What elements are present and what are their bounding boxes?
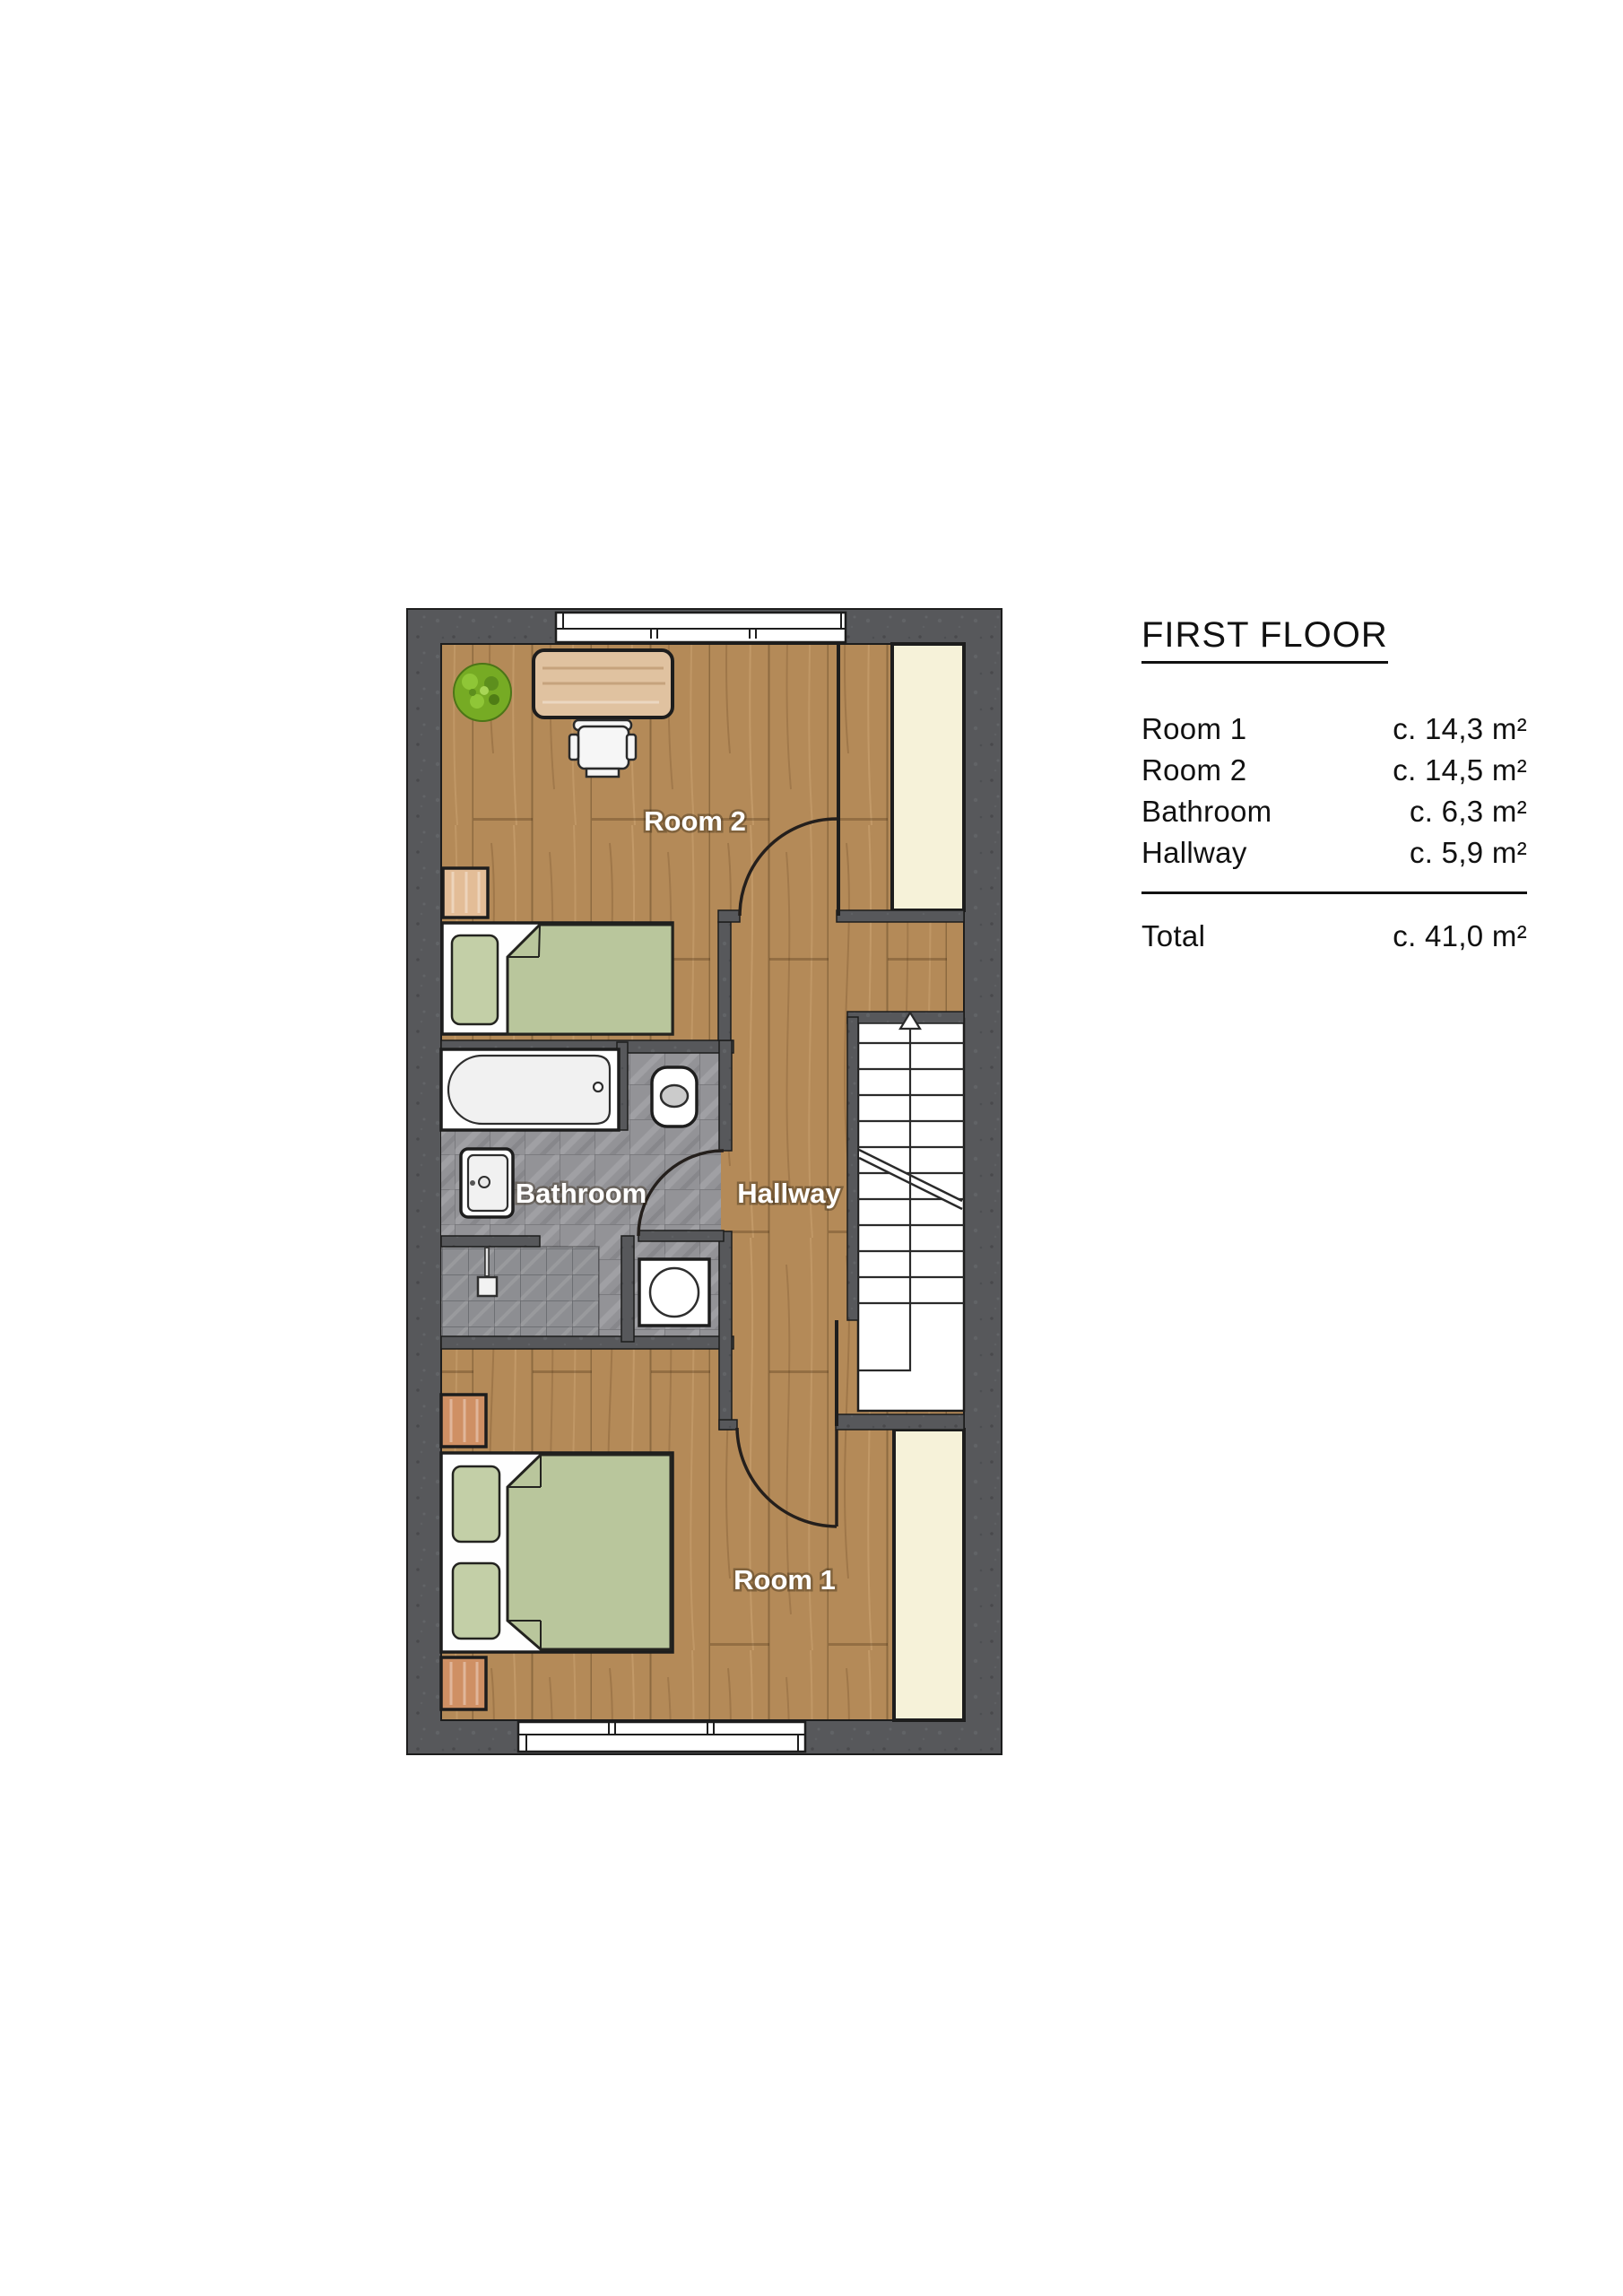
legend-rows: Room 1 c. 14,3 m² Room 2 c. 14,5 m² Bath… [1141, 709, 1527, 874]
legend-value: c. 14,5 m² [1393, 750, 1527, 791]
legend-separator [1141, 891, 1527, 894]
legend-label: Bathroom [1141, 791, 1271, 832]
legend-value: c. 41,0 m² [1393, 916, 1527, 957]
sink [461, 1149, 513, 1217]
legend-row-hallway: Hallway c. 5,9 m² [1141, 832, 1527, 874]
closet-room2 [892, 644, 964, 910]
legend-value: c. 14,3 m² [1393, 709, 1527, 750]
legend-label: Room 2 [1141, 750, 1246, 791]
legend-label: Hallway [1141, 832, 1247, 874]
window-bottom [518, 1722, 805, 1752]
tub-tap-icon [594, 1083, 603, 1091]
legend: FIRST FLOOR Room 1 c. 14,3 m² Room 2 c. … [1141, 615, 1527, 957]
legend-label: Room 1 [1141, 709, 1246, 750]
desk [534, 650, 673, 717]
page-title: FIRST FLOOR [1141, 615, 1388, 664]
shower-head-icon [478, 1277, 497, 1296]
bathroom-label: Bathroom [516, 1178, 647, 1209]
bathtub [441, 1049, 619, 1130]
nightstand-room1-top [441, 1395, 486, 1447]
legend-value: c. 6,3 m² [1410, 791, 1527, 832]
nightstand-room1-bottom [441, 1657, 486, 1709]
washer-drum-icon [650, 1268, 699, 1317]
floor-plan-page: Room 2 Bathroom Hallway Room 1 FIRST FLO… [0, 0, 1623, 2296]
room1-label: Room 1 [733, 1564, 836, 1596]
closet-room1 [894, 1430, 964, 1720]
hallway-label: Hallway [737, 1178, 841, 1209]
room2-label: Room 2 [644, 805, 746, 837]
legend-label: Total [1141, 916, 1205, 957]
washing-machine [639, 1259, 709, 1326]
legend-row-bathroom: Bathroom c. 6,3 m² [1141, 791, 1527, 832]
shower-floor [441, 1247, 599, 1342]
window-top [556, 613, 846, 642]
legend-row-room2: Room 2 c. 14,5 m² [1141, 750, 1527, 791]
bathroom-door-leaf [638, 1231, 724, 1241]
sink-tap-icon [479, 1177, 490, 1187]
legend-row-room1: Room 1 c. 14,3 m² [1141, 709, 1527, 750]
legend-value: c. 5,9 m² [1410, 832, 1527, 874]
nightstand-room2 [443, 868, 488, 918]
legend-row-total: Total c. 41,0 m² [1141, 916, 1527, 957]
bed-double [441, 1453, 673, 1652]
toilet [652, 1067, 697, 1126]
bed-single [442, 923, 673, 1034]
plant [454, 664, 511, 721]
floor-plan: Room 2 Bathroom Hallway Room 1 [0, 0, 1623, 2296]
